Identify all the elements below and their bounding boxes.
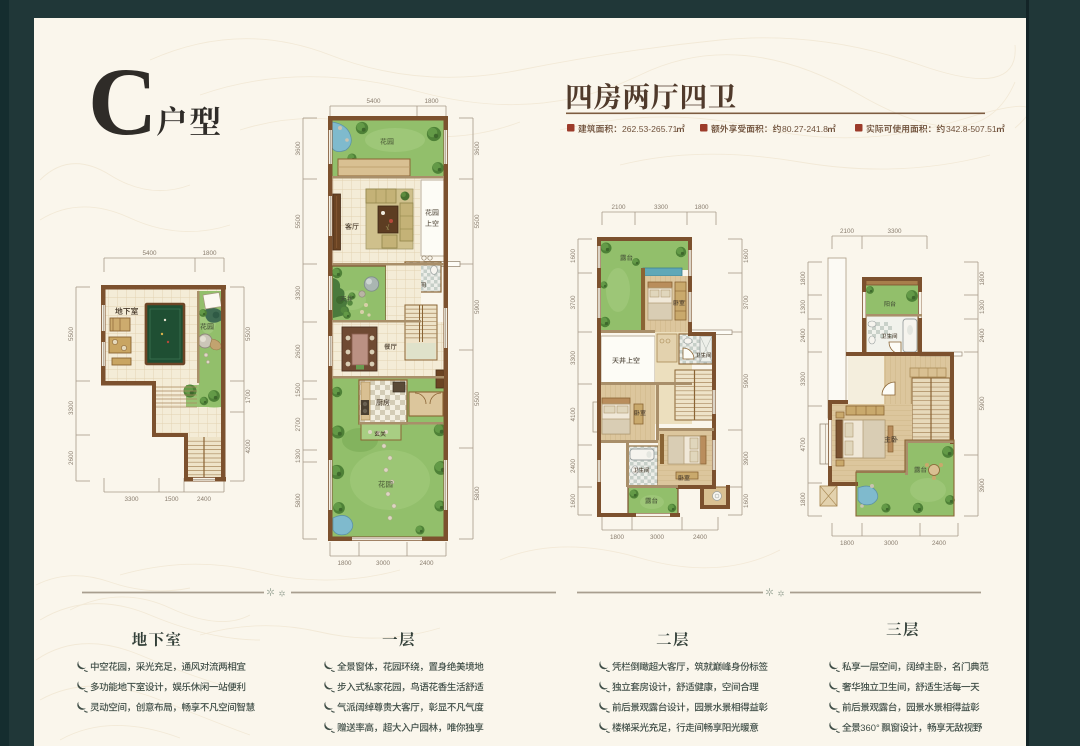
svg-text:1600: 1600	[743, 494, 750, 509]
svg-text:2600: 2600	[68, 451, 75, 466]
svg-text:5400: 5400	[366, 98, 381, 105]
svg-text:5900: 5900	[979, 396, 986, 411]
svg-text:80.27-241.8: 80.27-241.8	[782, 124, 828, 134]
svg-text:2600: 2600	[295, 344, 302, 359]
svg-text:3300: 3300	[654, 204, 669, 211]
svg-text:3900: 3900	[979, 478, 986, 493]
svg-text:2100: 2100	[840, 228, 855, 235]
svg-text:1300: 1300	[979, 300, 986, 315]
svg-text:2400: 2400	[800, 328, 807, 343]
svg-text:5800: 5800	[474, 486, 481, 501]
svg-text:5900: 5900	[474, 300, 481, 315]
svg-text:C: C	[88, 48, 157, 155]
svg-text:5900: 5900	[743, 374, 750, 389]
svg-text:2400: 2400	[979, 328, 986, 343]
svg-text:3600: 3600	[295, 141, 302, 156]
svg-text:3000: 3000	[884, 540, 899, 547]
svg-text:3300: 3300	[887, 228, 902, 235]
svg-text:3300: 3300	[124, 496, 139, 503]
svg-text:2100: 2100	[611, 204, 626, 211]
svg-text:1800: 1800	[979, 271, 986, 286]
svg-text:5500: 5500	[295, 214, 302, 229]
svg-text:1700: 1700	[245, 389, 252, 404]
svg-text:5500: 5500	[474, 392, 481, 407]
svg-text:2400: 2400	[693, 534, 708, 541]
svg-text:1600: 1600	[743, 249, 750, 264]
svg-text:360°: 360°	[860, 722, 880, 733]
svg-text:342.8-507.51: 342.8-507.51	[946, 124, 997, 134]
svg-text:3700: 3700	[743, 295, 750, 310]
svg-text:5400: 5400	[142, 250, 157, 257]
svg-text:1500: 1500	[295, 383, 302, 398]
svg-text:5500: 5500	[474, 214, 481, 229]
svg-text:4200: 4200	[245, 439, 252, 454]
svg-text:2400: 2400	[570, 459, 577, 474]
svg-text:2700: 2700	[295, 417, 302, 432]
svg-text:262.53-265.71: 262.53-265.71	[622, 124, 678, 134]
svg-text:1800: 1800	[694, 204, 709, 211]
svg-text:3700: 3700	[570, 295, 577, 310]
svg-text:3000: 3000	[650, 534, 665, 541]
svg-text:3300: 3300	[295, 286, 302, 301]
svg-text:3300: 3300	[68, 401, 75, 416]
svg-text:2400: 2400	[197, 496, 212, 503]
svg-text:3000: 3000	[376, 560, 391, 567]
svg-text:3600: 3600	[474, 141, 481, 156]
svg-text:1300: 1300	[295, 449, 302, 464]
svg-text:3300: 3300	[800, 372, 807, 387]
svg-text:1800: 1800	[610, 534, 625, 541]
svg-text:1800: 1800	[840, 540, 855, 547]
svg-text:1800: 1800	[337, 560, 352, 567]
svg-text:1600: 1600	[570, 494, 577, 509]
svg-text:1500: 1500	[164, 496, 179, 503]
svg-text:3900: 3900	[743, 451, 750, 466]
svg-text:1800: 1800	[202, 250, 217, 257]
svg-text:4700: 4700	[800, 437, 807, 452]
svg-text:2400: 2400	[932, 540, 947, 547]
svg-text:3300: 3300	[570, 351, 577, 366]
svg-text:1800: 1800	[800, 492, 807, 507]
svg-text:5800: 5800	[295, 493, 302, 508]
svg-text:4100: 4100	[570, 407, 577, 422]
svg-text:5500: 5500	[245, 327, 252, 342]
svg-text:1600: 1600	[570, 249, 577, 264]
svg-text:1800: 1800	[424, 98, 439, 105]
svg-text:2400: 2400	[419, 560, 434, 567]
svg-text:5500: 5500	[68, 327, 75, 342]
svg-text:1300: 1300	[800, 300, 807, 315]
svg-text:1800: 1800	[800, 271, 807, 286]
